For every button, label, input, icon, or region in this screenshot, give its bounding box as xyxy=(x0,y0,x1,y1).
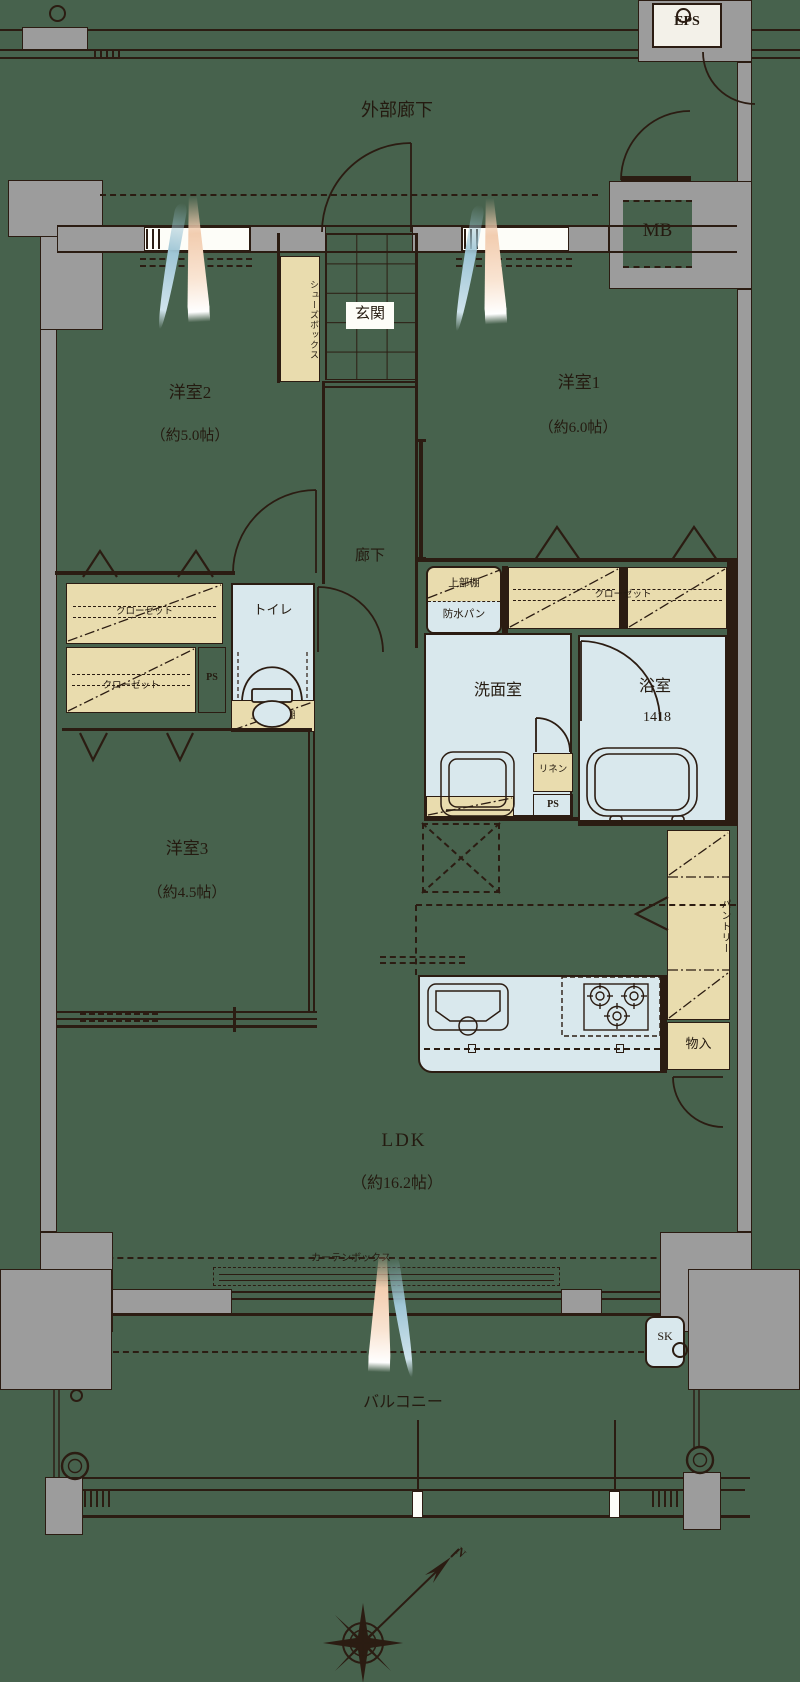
sliding-door-dash xyxy=(80,1019,158,1022)
wall-segment xyxy=(424,817,578,821)
wall-segment xyxy=(62,728,312,731)
bedroom2-door-arc xyxy=(233,490,316,573)
bedroom2-size: （約5.0帖） xyxy=(115,428,265,445)
hallway-label: 廊下 xyxy=(337,548,403,565)
shoe-box-label: シューズボックス xyxy=(281,263,319,377)
balcony-window-glass xyxy=(232,1298,689,1300)
storage-closet-label: 物入 xyxy=(667,1037,730,1052)
toilet-label: トイレ xyxy=(231,603,315,618)
bathroom-size-code: 1418 xyxy=(617,710,697,726)
vent-circle-icon xyxy=(676,8,691,23)
bedroom2-label: 洋室2 xyxy=(130,383,250,403)
closet-bedroom1-label: クローゼット xyxy=(553,590,693,601)
balcony-railing xyxy=(55,1477,750,1479)
entrance-step xyxy=(322,381,418,383)
washer-base-shelf xyxy=(426,796,514,817)
wall-segment xyxy=(578,820,737,826)
wall-segment xyxy=(322,382,325,584)
pillar-bottom-right xyxy=(688,1269,800,1390)
wall-band-left xyxy=(40,329,57,1232)
balcony-label: バルコニー xyxy=(333,1394,473,1412)
wall-segment xyxy=(57,227,144,251)
refrigerator-space xyxy=(422,823,500,893)
bathroom-label: 浴室 xyxy=(615,678,695,696)
airflow-brush-icon xyxy=(462,198,518,338)
dash-marker xyxy=(468,1044,476,1053)
wall-segment xyxy=(569,227,609,251)
wall-hatch xyxy=(94,49,122,59)
vent-circle-icon xyxy=(49,5,66,22)
drain-circle-icon xyxy=(70,1389,83,1402)
compass-icon: N xyxy=(323,1544,469,1682)
entrance-label: 玄関 xyxy=(346,306,394,323)
mb-label: MB xyxy=(623,220,692,242)
hanging-cabinet-dash xyxy=(424,1048,660,1050)
bedroom3-size: （約4.5帖） xyxy=(112,885,262,902)
wall-band-right xyxy=(737,289,752,1232)
waterproof-pan-label: 防水パン xyxy=(426,609,502,621)
mb-door-leaf xyxy=(621,176,691,181)
exterior-wall-block xyxy=(22,27,88,50)
wall-stub xyxy=(502,566,508,634)
entrance-step xyxy=(322,386,418,388)
toilet-room xyxy=(231,583,315,702)
exterior-corridor-label: 外部廊下 xyxy=(330,100,464,121)
balcony-railing xyxy=(65,1489,745,1491)
door-mullion xyxy=(233,1007,236,1032)
wall-segment xyxy=(55,571,235,575)
window-frame-hatch xyxy=(146,229,160,249)
upper-hanging-cupboard-label: 上部吊戸棚 xyxy=(231,710,315,720)
entrance-door-arc xyxy=(322,143,411,232)
wall-segment xyxy=(418,558,738,562)
wall-segment xyxy=(661,975,667,1073)
storage-door-arc xyxy=(673,1077,723,1127)
hanging-cabinet-dash xyxy=(380,956,465,958)
kitchen-boundary-dash xyxy=(416,904,736,906)
wall-segment xyxy=(561,1289,602,1315)
drain-circle-icon xyxy=(672,1342,688,1358)
bathroom xyxy=(578,635,727,822)
wall-segment xyxy=(250,227,326,251)
ps-label: PS xyxy=(198,672,226,684)
ps-label: PS xyxy=(533,799,573,811)
dash-marker xyxy=(616,1044,624,1053)
wall-band-right xyxy=(737,62,752,182)
wall-hatch xyxy=(84,1490,114,1507)
wall-segment xyxy=(105,1289,232,1315)
closet-bedroom3 xyxy=(66,647,196,713)
toilet-door-arc xyxy=(318,587,383,652)
closet-bedroom3-label: クローゼット xyxy=(66,681,196,692)
washroom-label: 洗面室 xyxy=(434,682,562,700)
bedroom3-sliding-door xyxy=(308,731,310,1013)
balcony-window-glass xyxy=(232,1291,689,1293)
ldk-label: LDK xyxy=(344,1130,464,1152)
floor-plan: EPS 外部廊下 MB シューズボックス 玄関 廊下 洋室2 （約5.0帖） 洋… xyxy=(0,0,800,1682)
pantry-label: パントリー xyxy=(667,880,730,972)
sliding-door-cap xyxy=(415,439,426,442)
bedroom1-label: 洋室1 xyxy=(518,373,640,393)
linen-label: リネン xyxy=(533,765,573,776)
bedroom3-door-track xyxy=(57,1025,317,1028)
pillar-bottom-left xyxy=(0,1269,112,1390)
sliding-door-dash xyxy=(80,1012,158,1015)
upper-shelf-label: 上部棚 xyxy=(426,578,502,590)
airflow-brush-icon xyxy=(370,1250,426,1382)
airflow-brush-icon xyxy=(165,196,221,336)
bedroom1-size: （約6.0帖） xyxy=(500,420,656,437)
kitchen-counter xyxy=(418,975,662,1073)
railing-post-base xyxy=(609,1491,620,1518)
shoe-box: シューズボックス xyxy=(280,256,320,382)
bedroom3-label: 洋室3 xyxy=(127,839,247,859)
wall-segment xyxy=(412,227,462,251)
drain-block xyxy=(683,1472,721,1530)
railing-post-base xyxy=(412,1491,423,1518)
drain-block xyxy=(45,1477,83,1535)
bedroom3-sliding-door xyxy=(313,731,315,1013)
compass-north-label: N xyxy=(453,1544,469,1560)
ldk-size: （約16.2帖） xyxy=(322,1175,472,1193)
closet-bedroom2-label: クローゼット xyxy=(66,607,223,618)
kitchen-boundary-dash xyxy=(415,905,417,975)
mb-door-arc xyxy=(621,111,690,180)
hanging-cabinet-dash xyxy=(380,962,465,964)
wall-hatch xyxy=(652,1490,682,1507)
wall-segment xyxy=(727,558,737,824)
bedroom1-sliding-door xyxy=(419,441,423,559)
